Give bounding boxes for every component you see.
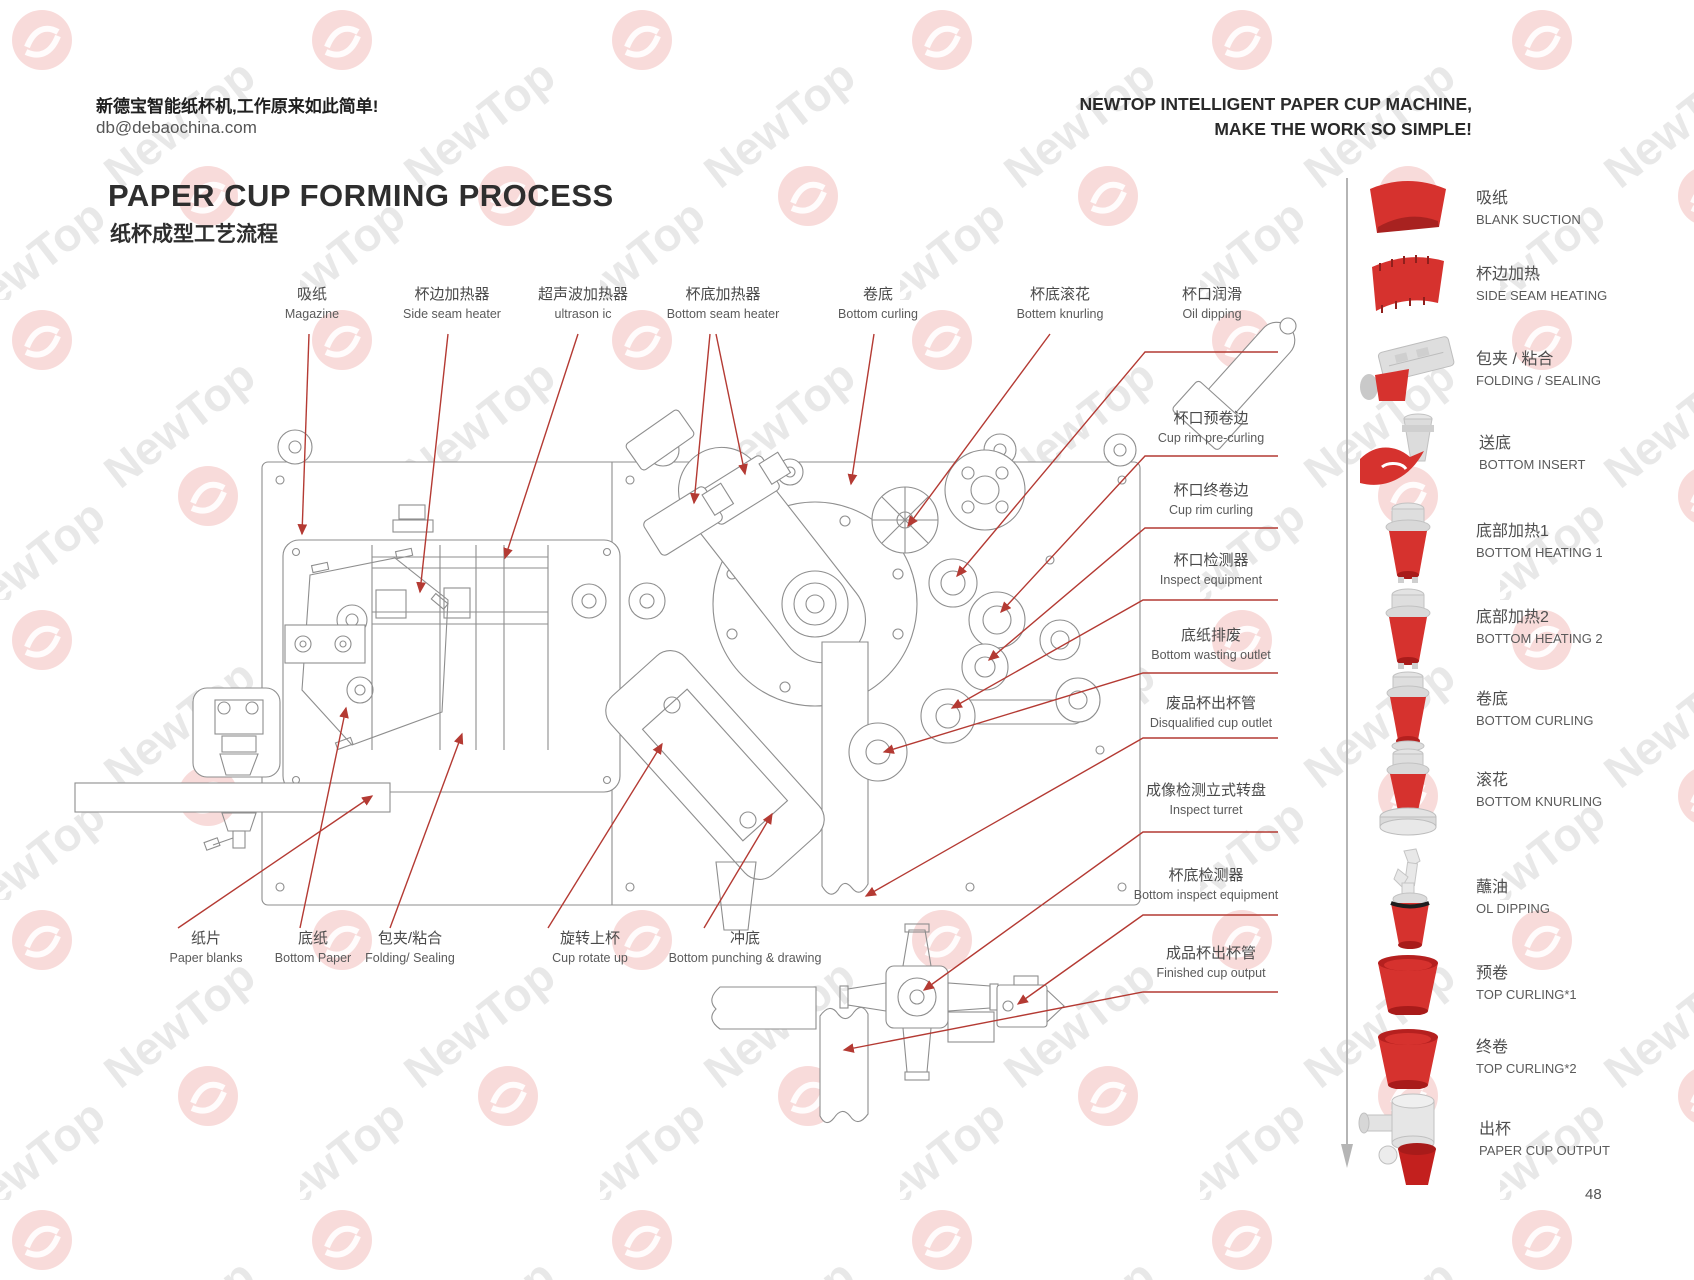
process-step-side-seam-heating: 杯边加热 SIDE SEAM HEATING — [1352, 250, 1682, 320]
label-oil-dipping: 杯口润滑Oil dipping — [1137, 286, 1287, 322]
top-curling-2-icon — [1352, 1027, 1464, 1089]
header-slogan-en-line2: MAKE THE WORK SO SIMPLE! — [1214, 119, 1472, 139]
blank-magazine-plate — [283, 540, 620, 792]
page-number: 48 — [1585, 1186, 1602, 1203]
bottom-heating-1-icon — [1352, 499, 1464, 585]
label-inspect-turret: 成像检测立式转盘Inspect turret — [1106, 782, 1306, 818]
label-finished-cup-output: 成品杯出杯管Finished cup output — [1116, 945, 1306, 981]
process-step-folding-sealing: 包夹 / 粘合 FOLDING / SEALING — [1352, 334, 1682, 406]
label-magazine: 吸纸Magazine — [237, 286, 387, 322]
process-step-bottom-insert: 送底 BOTTOM INSERT — [1352, 408, 1682, 500]
label-cup-rim-pre-curling: 杯口预卷边Cup rim pre-curling — [1126, 410, 1296, 446]
bottom-insert-icon — [1352, 409, 1467, 499]
header-slogan-en-line1: NEWTOP INTELLIGENT PAPER CUP MACHINE, — [1080, 94, 1473, 114]
process-step-oil-dipping: 蘸油 OL DIPPING — [1352, 846, 1682, 950]
label-bottom-punching: 冲底Bottom punching & drawing — [640, 930, 850, 966]
bottom-knurling-icon — [1352, 745, 1464, 837]
folding-sealing-icon — [1352, 335, 1464, 405]
process-step-paper-cup-output: 出杯 PAPER CUP OUTPUT — [1352, 1092, 1682, 1188]
oil-dipping-icon — [1352, 847, 1464, 949]
bottom-inspect-camera — [997, 976, 1064, 1027]
page-subtitle-zh: 纸杯成型工艺流程 — [110, 218, 278, 248]
label-bottom-curling: 卷底Bottom curling — [803, 286, 953, 322]
process-step-bottom-heating-2: 底部加热2 BOTTOM HEATING 2 — [1352, 584, 1682, 672]
label-disqualified-cup-outlet: 废品杯出杯管Disqualified cup outlet — [1116, 695, 1306, 731]
process-step-top-curling-2: 终卷 TOP CURLING*2 — [1352, 1026, 1682, 1090]
label-bottom-knurling: 杯底滚花Bottem knurling — [985, 286, 1135, 322]
label-inspect-equipment: 杯口检测器Inspect equipment — [1126, 552, 1296, 588]
process-step-top-curling-1: 预卷 TOP CURLING*1 — [1352, 952, 1682, 1016]
label-ultrasonic-heater: 超声波加热器ultrason ic — [508, 286, 658, 322]
top-curling-1-icon — [1352, 953, 1464, 1015]
label-side-seam-heater: 杯边加热器Side seam heater — [377, 286, 527, 322]
label-bottom-inspect-equipment: 杯底检测器Bottom inspect equipment — [1106, 867, 1306, 903]
chute-roller — [849, 723, 907, 781]
page-title: PAPER CUP FORMING PROCESS — [108, 178, 614, 214]
bottom-heating-2-icon — [1352, 585, 1464, 671]
header-email: db@debaochina.com — [96, 118, 257, 138]
header-slogan-en: NEWTOP INTELLIGENT PAPER CUP MACHINE, MA… — [1080, 92, 1473, 143]
paper-cup-output-icon — [1352, 1093, 1467, 1187]
bottom-curling-icon — [1352, 668, 1464, 752]
label-bottom-wasting-outlet: 底纸排废Bottom wasting outlet — [1116, 627, 1306, 663]
process-step-bottom-knurling: 滚花 BOTTOM KNURLING — [1352, 744, 1682, 838]
process-step-bottom-curling: 卷底 BOTTOM CURLING — [1352, 668, 1682, 752]
output-tube — [820, 1007, 868, 1122]
horizontal-cup-tube — [712, 987, 816, 1029]
label-bottom-seam-heater: 杯底加热器Bottom seam heater — [648, 286, 798, 322]
process-step-blank-suction: 吸纸 BLANK SUCTION — [1352, 176, 1682, 242]
side-seam-heating-icon — [1352, 251, 1464, 319]
label-cup-rim-curling: 杯口终卷边Cup rim curling — [1126, 482, 1296, 518]
process-step-bottom-heating-1: 底部加热1 BOTTOM HEATING 1 — [1352, 498, 1682, 586]
header-slogan-zh: 新德宝智能纸杯机,工作原来如此简单! — [96, 92, 378, 117]
blank-suction-icon — [1352, 177, 1464, 241]
label-folding-sealing: 包夹/粘合Folding/ Sealing — [325, 930, 495, 966]
